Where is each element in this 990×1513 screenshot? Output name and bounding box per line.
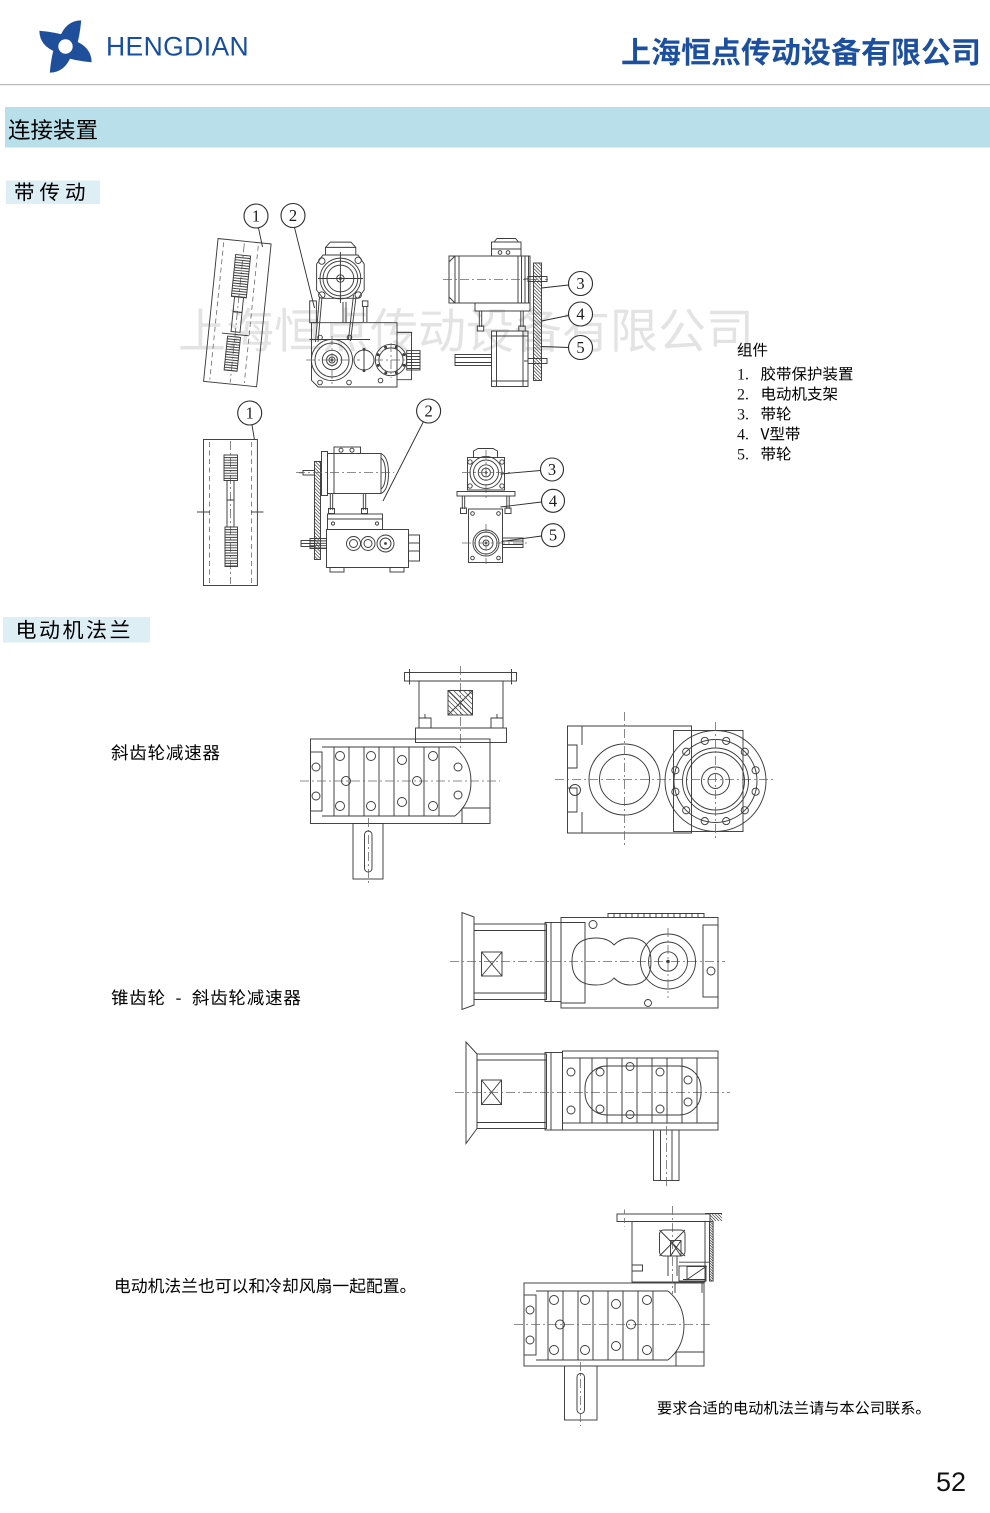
svg-text:4: 4 (576, 305, 584, 324)
svg-text:4: 4 (549, 491, 557, 510)
svg-text:4.: 4. (737, 427, 749, 444)
svg-text:52: 52 (936, 1467, 966, 1497)
svg-text:3: 3 (576, 274, 584, 293)
svg-text:HENGDIAN: HENGDIAN (106, 32, 249, 62)
svg-text:3: 3 (548, 460, 556, 479)
svg-text:2: 2 (289, 206, 297, 225)
svg-text:5: 5 (549, 526, 557, 545)
svg-text:5.: 5. (737, 447, 749, 464)
svg-text:1: 1 (246, 404, 254, 423)
svg-text:2.: 2. (737, 387, 749, 404)
svg-text:2: 2 (424, 402, 432, 421)
svg-text:1: 1 (252, 207, 260, 226)
svg-text:5: 5 (576, 338, 584, 357)
svg-text:1.: 1. (737, 367, 749, 384)
svg-text:3.: 3. (737, 407, 749, 424)
